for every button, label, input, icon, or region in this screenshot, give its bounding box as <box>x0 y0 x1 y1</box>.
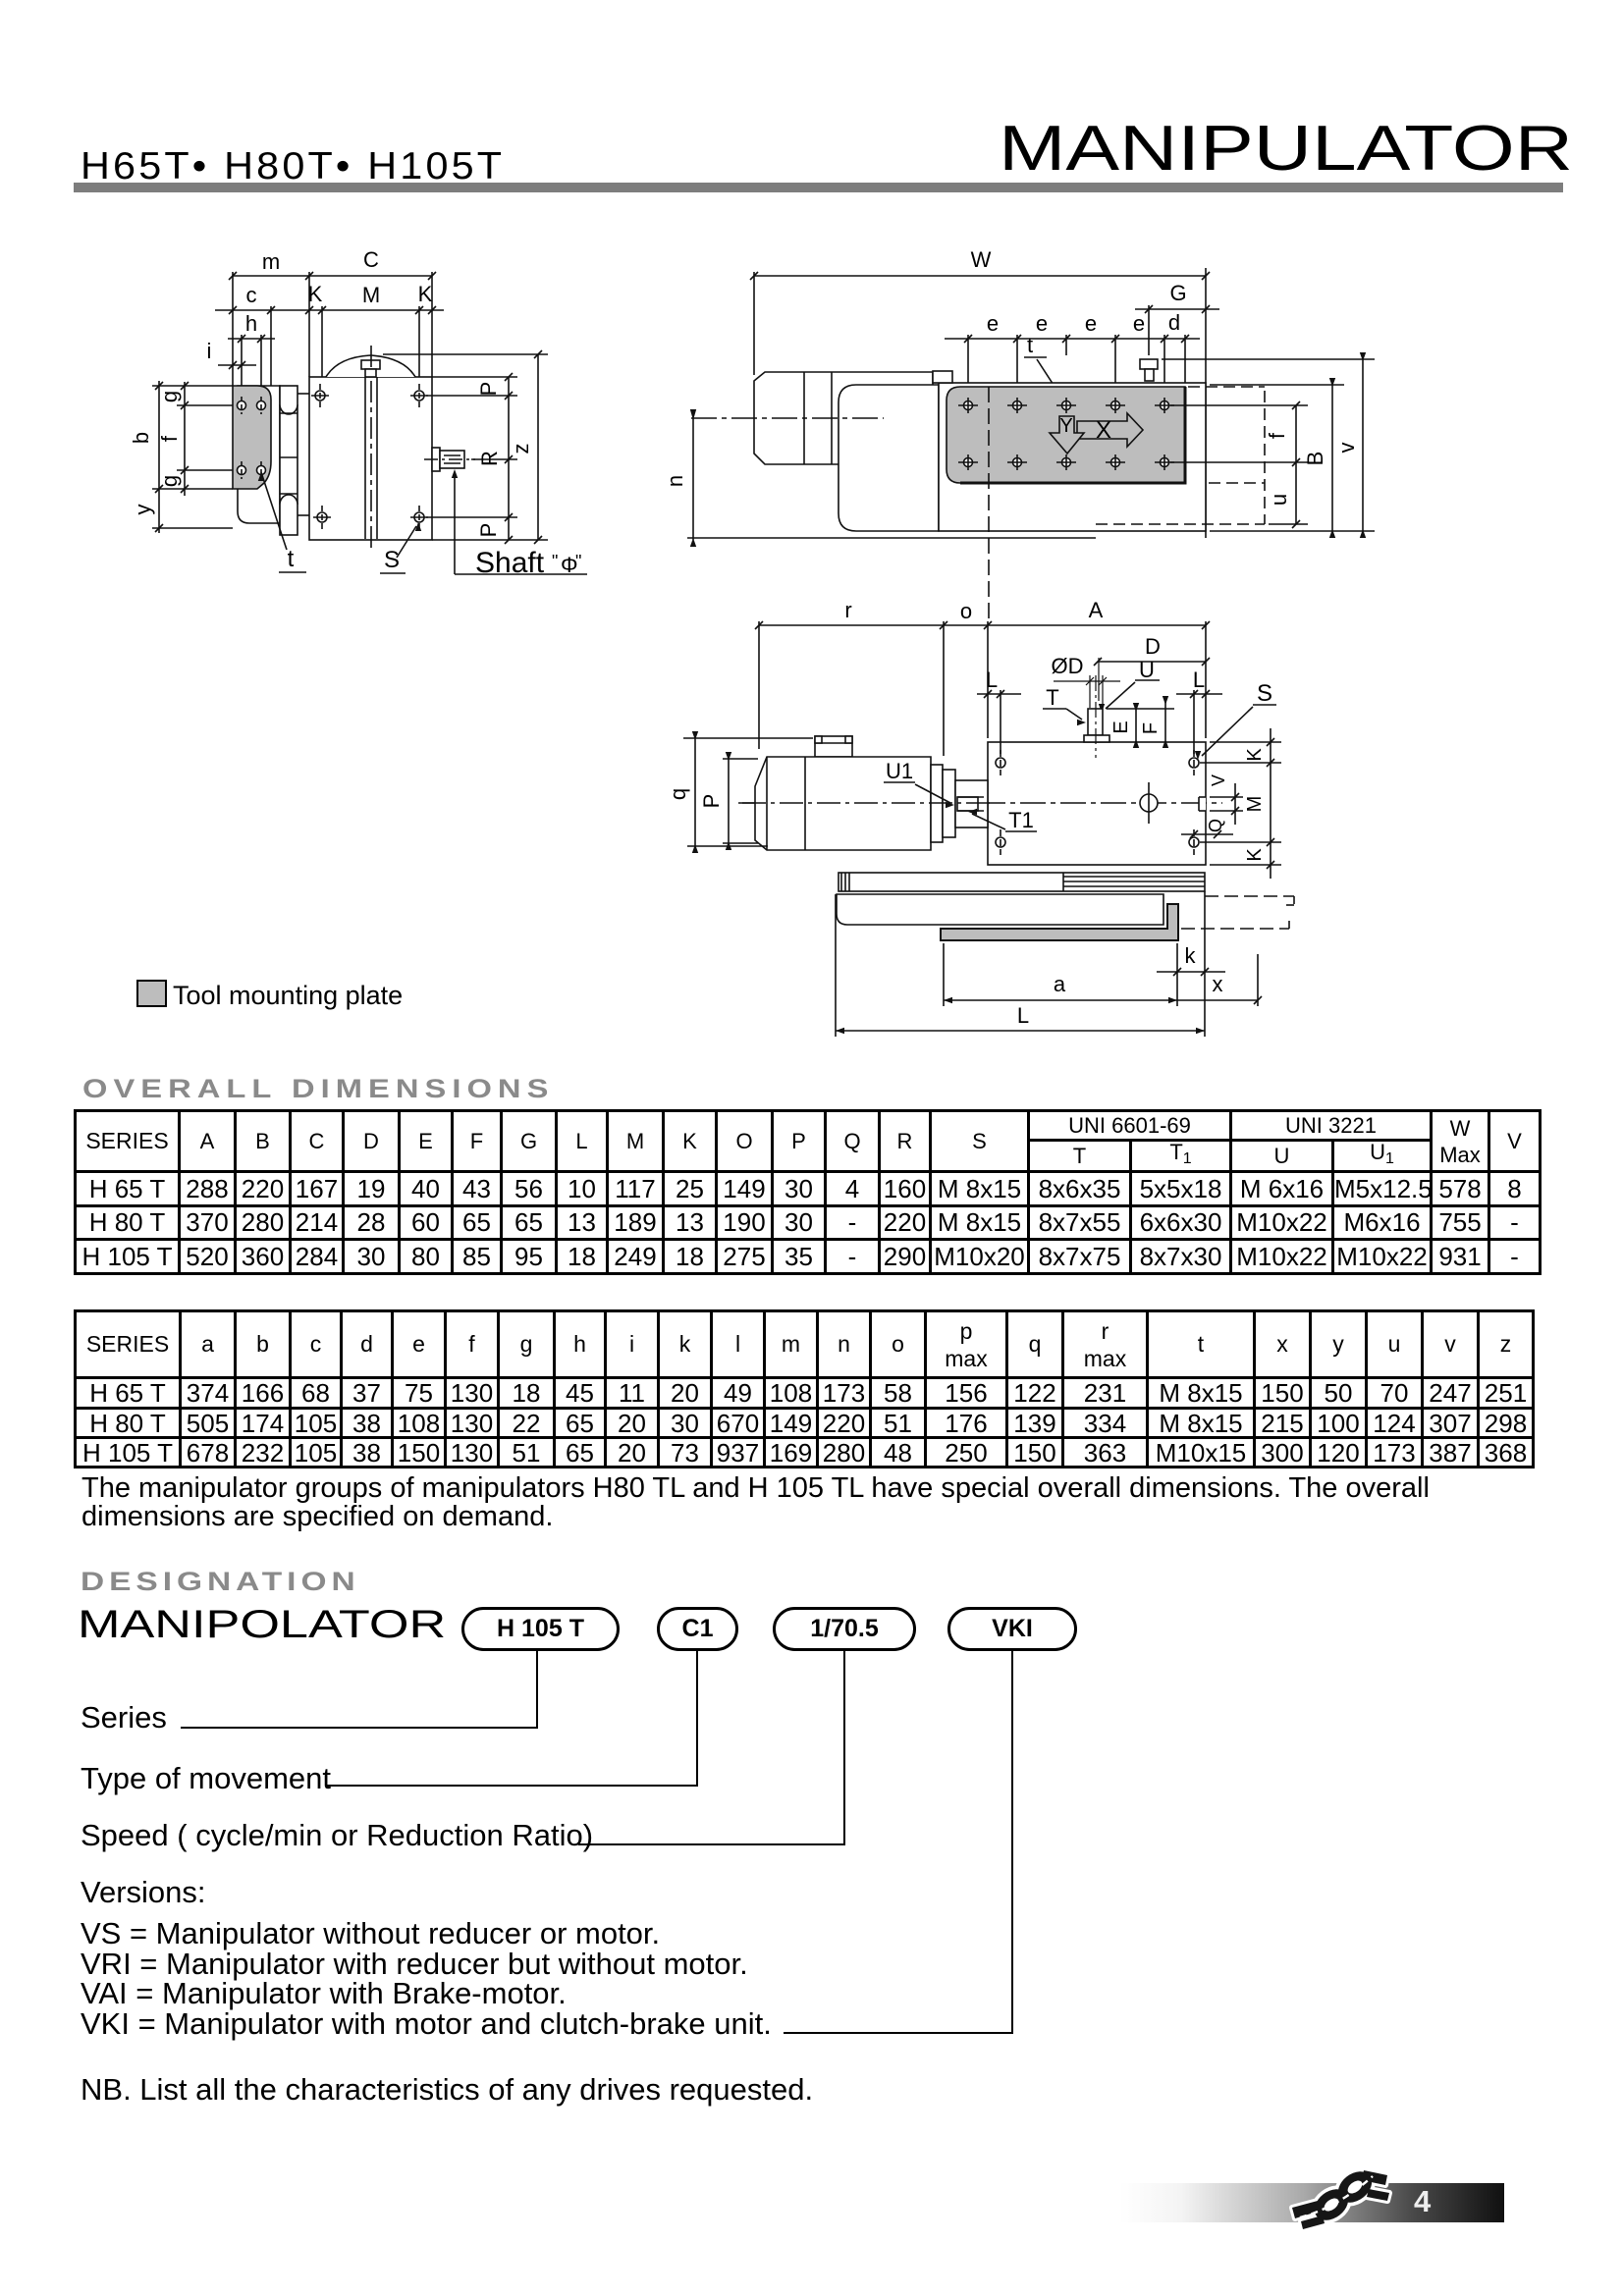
svg-text:U: U <box>1139 658 1155 682</box>
svg-text:c: c <box>246 283 257 307</box>
svg-text:m: m <box>262 249 280 274</box>
svg-text:P: P <box>699 794 724 809</box>
svg-text:e: e <box>1133 311 1145 336</box>
svg-text:y: y <box>131 505 155 515</box>
svg-text:A: A <box>1089 598 1104 622</box>
svg-text:k: k <box>1185 943 1197 968</box>
svg-text:T1: T1 <box>1008 808 1034 832</box>
svg-text:P: P <box>476 523 501 538</box>
svg-text:T: T <box>1046 685 1058 710</box>
svg-text:K: K <box>1244 748 1266 762</box>
svg-text:g: g <box>157 391 182 402</box>
svg-text:": " <box>552 552 558 571</box>
svg-text:D: D <box>1145 634 1161 659</box>
svg-text:L: L <box>986 667 998 692</box>
svg-text:": " <box>575 552 581 571</box>
svg-text:V: V <box>1209 774 1228 786</box>
svg-text:t: t <box>288 546 295 572</box>
svg-text:Shaft: Shaft <box>475 547 545 579</box>
svg-text:L: L <box>1017 1003 1029 1028</box>
svg-text:G: G <box>1169 281 1186 305</box>
svg-text:F: F <box>1140 722 1162 734</box>
svg-text:g: g <box>157 475 182 487</box>
svg-text:R: R <box>477 451 502 466</box>
svg-text:d: d <box>1168 310 1180 335</box>
svg-text:e: e <box>1085 311 1097 336</box>
svg-text:e: e <box>987 311 999 336</box>
svg-text:X: X <box>1096 417 1111 444</box>
svg-text:4: 4 <box>1414 2184 1432 2218</box>
svg-text:f: f <box>1265 432 1289 439</box>
svg-text:q: q <box>666 788 690 800</box>
svg-text:r: r <box>844 598 851 622</box>
svg-text:M: M <box>1244 796 1266 813</box>
svg-text:a: a <box>1054 972 1066 996</box>
svg-text:S: S <box>384 547 400 573</box>
svg-text:Y: Y <box>1059 415 1072 437</box>
svg-text:u: u <box>1267 494 1291 506</box>
svg-text:L: L <box>1193 667 1205 692</box>
svg-text:E: E <box>1110 721 1132 733</box>
svg-text:i: i <box>207 339 212 363</box>
svg-text:t: t <box>1027 333 1033 357</box>
svg-text:ØD: ØD <box>1052 654 1084 678</box>
svg-text:Q: Q <box>1206 819 1225 832</box>
svg-text:K: K <box>1244 848 1266 862</box>
svg-text:n: n <box>663 475 687 487</box>
svg-text:f: f <box>157 435 182 442</box>
svg-text:b: b <box>129 432 153 444</box>
svg-text:S: S <box>1257 680 1272 707</box>
svg-text:z: z <box>509 444 533 454</box>
svg-text:x: x <box>1213 972 1223 996</box>
svg-text:W: W <box>971 247 992 272</box>
svg-text:K: K <box>418 282 433 306</box>
svg-text:o: o <box>960 599 972 623</box>
svg-text:B: B <box>1303 452 1327 466</box>
svg-text:M: M <box>362 283 380 307</box>
svg-text:U1: U1 <box>886 759 913 783</box>
svg-text:v: v <box>1334 443 1359 454</box>
svg-text:h: h <box>245 311 257 336</box>
svg-text:e: e <box>1036 311 1048 336</box>
svg-text:P: P <box>476 382 501 397</box>
svg-text:K: K <box>308 282 323 306</box>
svg-text:C: C <box>363 247 379 272</box>
